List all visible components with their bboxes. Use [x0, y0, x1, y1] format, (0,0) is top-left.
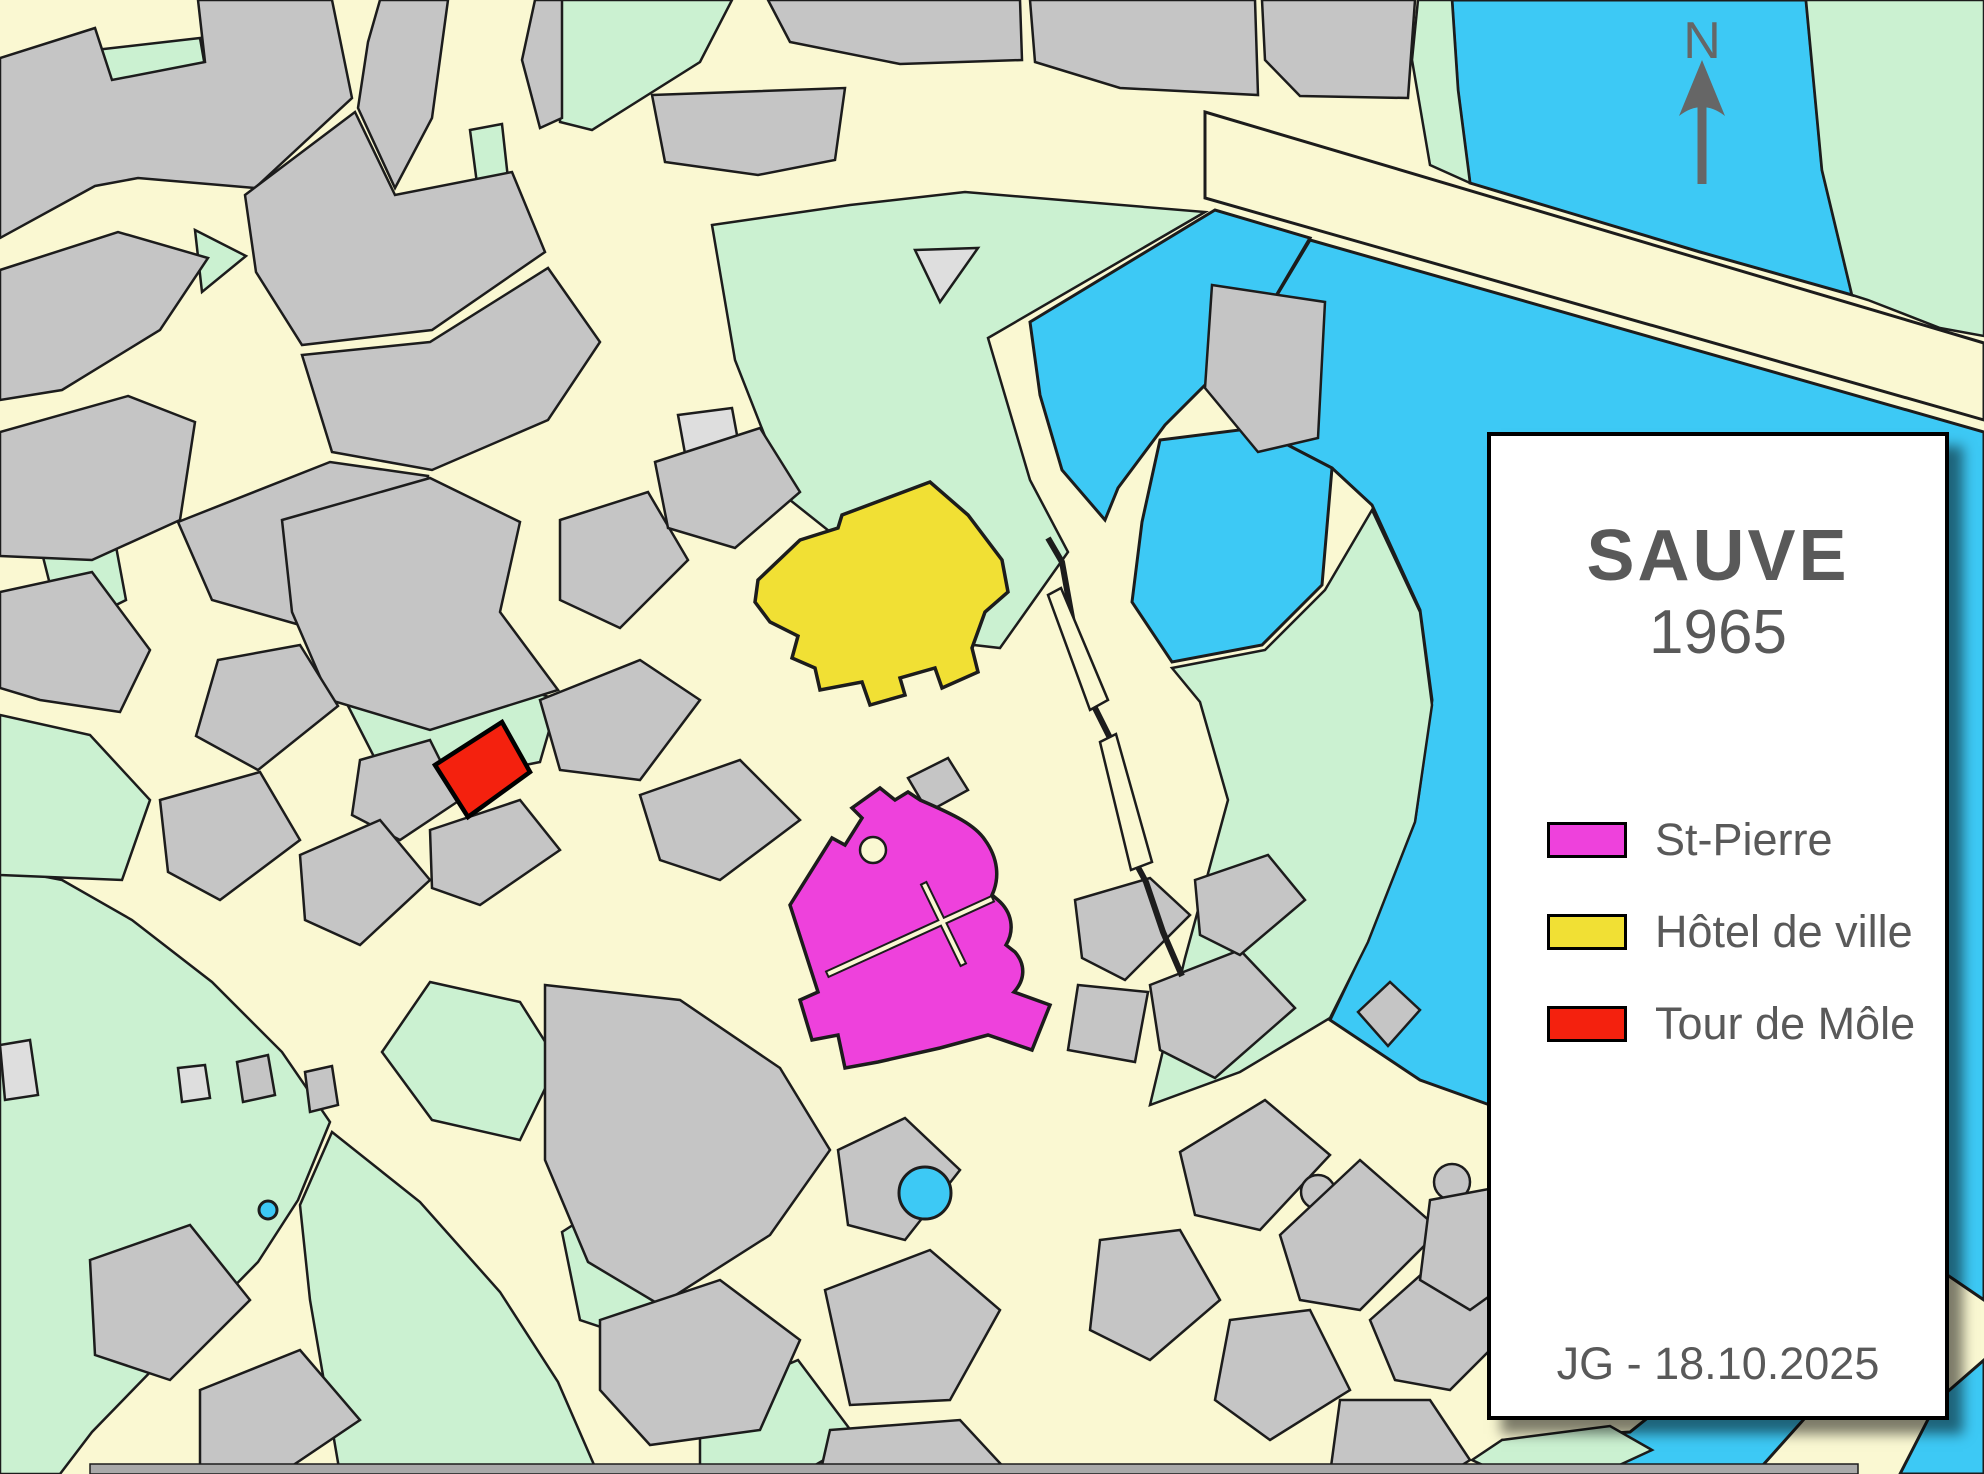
- building-shape: [522, 0, 562, 128]
- hotel-de-ville-swatch: [1547, 914, 1627, 950]
- map-year: 1965: [1491, 602, 1945, 664]
- legend-item-label: Hôtel de ville: [1655, 906, 1913, 958]
- building-shape: [430, 800, 560, 905]
- fountain-pond: [899, 1167, 951, 1219]
- building-shape: [237, 1055, 275, 1102]
- legend-panel: SAUVE 1965 St-Pierre Hôtel de ville Tour…: [1487, 432, 1949, 1420]
- building-shape: [825, 1250, 1000, 1405]
- map-page: { "legend": { "title": "SAUVE", "year": …: [0, 0, 1984, 1474]
- building-shape: [1075, 878, 1190, 980]
- building-shape: [545, 985, 830, 1305]
- green-shape: [382, 982, 558, 1140]
- building-light-shape: [0, 1040, 38, 1100]
- building-shape: [540, 660, 700, 780]
- building-shape: [652, 88, 845, 175]
- tour-de-mole-swatch: [1547, 1006, 1627, 1042]
- building-shape: [1030, 0, 1258, 95]
- building-shape: [640, 760, 800, 880]
- building-shape: [768, 0, 1022, 64]
- stair-strip: [1100, 734, 1152, 870]
- north-arrow: N: [1652, 6, 1752, 206]
- building-shape: [1205, 285, 1325, 452]
- building-light-shape: [178, 1065, 210, 1102]
- hotel-de-ville-building: [755, 482, 1008, 705]
- legend-item-st-pierre: St-Pierre: [1547, 818, 1833, 862]
- small-fountain: [259, 1201, 277, 1219]
- legend-item-hotel-de-ville: Hôtel de ville: [1547, 910, 1913, 954]
- church-courtyard: [860, 837, 886, 863]
- map-edge-strip: [90, 1464, 1858, 1474]
- building-shape: [0, 572, 150, 712]
- building-shape: [300, 820, 430, 945]
- building-shape: [1090, 1230, 1220, 1360]
- building-shape: [305, 1066, 338, 1112]
- stair-strip: [1048, 588, 1108, 710]
- map-credit: JG - 18.10.2025: [1491, 1338, 1945, 1390]
- green-shape: [0, 715, 150, 880]
- building-shape: [0, 232, 208, 400]
- legend-item-label: Tour de Môle: [1655, 998, 1915, 1050]
- legend-item-label: St-Pierre: [1655, 814, 1833, 866]
- legend-item-tour-de-mole: Tour de Môle: [1547, 1002, 1915, 1046]
- building-shape: [1262, 0, 1415, 98]
- st-pierre-swatch: [1547, 822, 1627, 858]
- map-title: SAUVE: [1491, 520, 1945, 592]
- building-shape: [1068, 985, 1148, 1062]
- building-shape: [160, 772, 300, 900]
- building-shape: [1215, 1310, 1350, 1440]
- building-shape: [0, 396, 195, 560]
- building-shape: [1330, 1400, 1470, 1474]
